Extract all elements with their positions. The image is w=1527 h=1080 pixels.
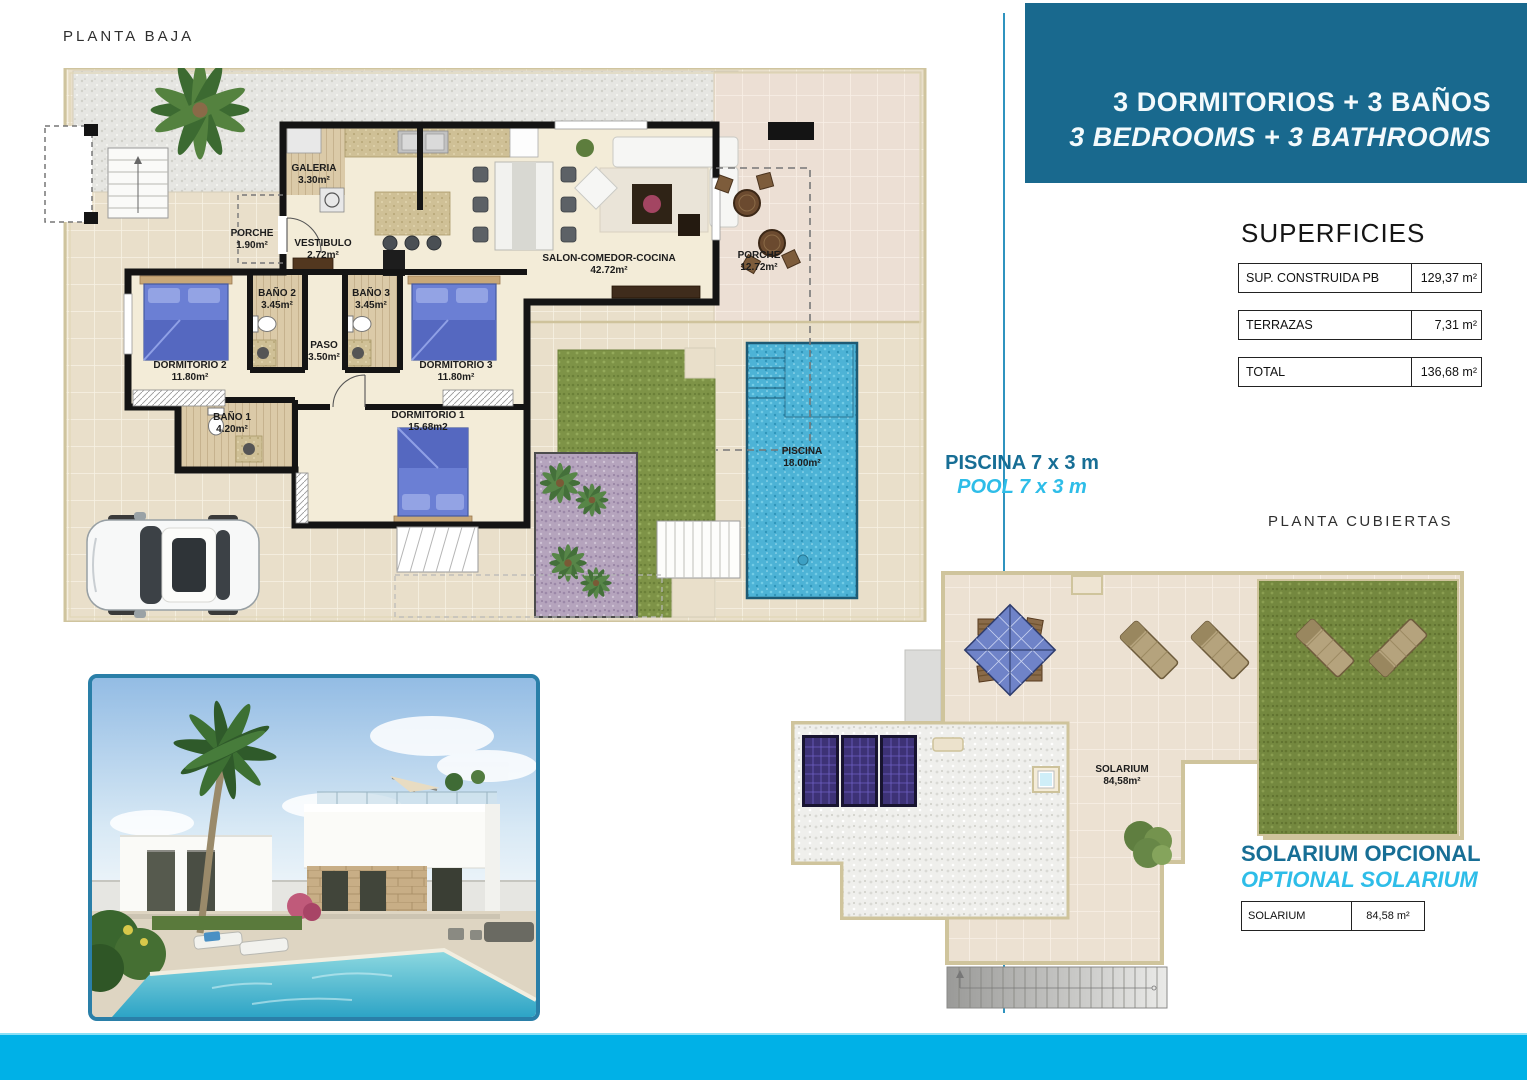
banner-line-en: 3 BEDROOMS + 3 BATHROOMS: [1069, 120, 1491, 155]
roof-labels: SOLARIUM84,58m²: [780, 560, 1480, 1020]
row-value: 7,31 m²: [1411, 311, 1481, 339]
pool-note-es: PISCINA 7 x 3 m: [943, 451, 1101, 475]
ground-floor-labels: GALERIA3.30m²PORCHE1.90m²VESTIBULO2.72m²…: [40, 68, 927, 622]
room-label: DORMITORIO 115.68m2: [391, 410, 464, 433]
brochure-page: PLANTA BAJA: [0, 0, 1527, 1080]
ground-floor-title: PLANTA BAJA: [63, 28, 194, 45]
table-row: SOLARIUM 84,58 m²: [1241, 901, 1425, 931]
room-label: BAÑO 23.45m²: [258, 288, 296, 311]
room-label: BAÑO 33.45m²: [352, 288, 390, 311]
row-value: 129,37 m²: [1411, 264, 1481, 292]
pool-note: PISCINA 7 x 3 m POOL 7 x 3 m: [943, 451, 1101, 499]
room-label: VESTIBULO2.72m²: [294, 238, 351, 261]
row-label: SUP. CONSTRUIDA PB: [1239, 264, 1411, 292]
ground-floor-plan: GALERIA3.30m²PORCHE1.90m²VESTIBULO2.72m²…: [40, 68, 927, 622]
room-label: DORMITORIO 311.80m²: [419, 360, 492, 383]
room-label: PASO3.50m²: [308, 340, 340, 363]
row-value: 136,68 m²: [1411, 358, 1481, 386]
pool-note-en: POOL 7 x 3 m: [943, 475, 1101, 499]
row-value: 84,58 m²: [1351, 902, 1424, 930]
banner-line-es: 3 DORMITORIOS + 3 BAÑOS: [1113, 85, 1491, 120]
superficies-title: SUPERFICIES: [1241, 218, 1425, 249]
roof-plan-title: PLANTA CUBIERTAS: [1268, 513, 1453, 530]
solarium-note-en: OPTIONAL SOLARIUM: [1241, 867, 1481, 893]
row-label: TERRAZAS: [1239, 311, 1411, 339]
villa-photo-drawing: [92, 678, 536, 1017]
table-row: TERRAZAS 7,31 m²: [1238, 310, 1482, 340]
table-row: TOTAL 136,68 m²: [1238, 357, 1482, 387]
room-label: GALERIA3.30m²: [292, 163, 337, 186]
room-label: PORCHE1.90m²: [231, 228, 274, 251]
bottom-bar: [0, 1033, 1527, 1080]
room-label: SOLARIUM84,58m²: [1095, 764, 1148, 787]
solarium-note: SOLARIUM OPCIONAL OPTIONAL SOLARIUM SOLA…: [1241, 841, 1481, 931]
villa-photo: [88, 674, 540, 1021]
room-label: PORCHE12.72m²: [738, 250, 781, 273]
room-label: BAÑO 14.20m²: [213, 412, 251, 435]
row-label: SOLARIUM: [1242, 902, 1351, 930]
banner: 3 DORMITORIOS + 3 BAÑOS 3 BEDROOMS + 3 B…: [1025, 3, 1527, 183]
row-label: TOTAL: [1239, 358, 1411, 386]
room-label: DORMITORIO 211.80m²: [153, 360, 226, 383]
solarium-note-es: SOLARIUM OPCIONAL: [1241, 841, 1481, 867]
roof-plan: SOLARIUM84,58m²: [780, 560, 1480, 1020]
table-row: SUP. CONSTRUIDA PB 129,37 m²: [1238, 263, 1482, 293]
room-label: PISCINA18.00m²: [782, 446, 823, 469]
room-label: SALON-COMEDOR-COCINA42.72m²: [542, 253, 675, 276]
